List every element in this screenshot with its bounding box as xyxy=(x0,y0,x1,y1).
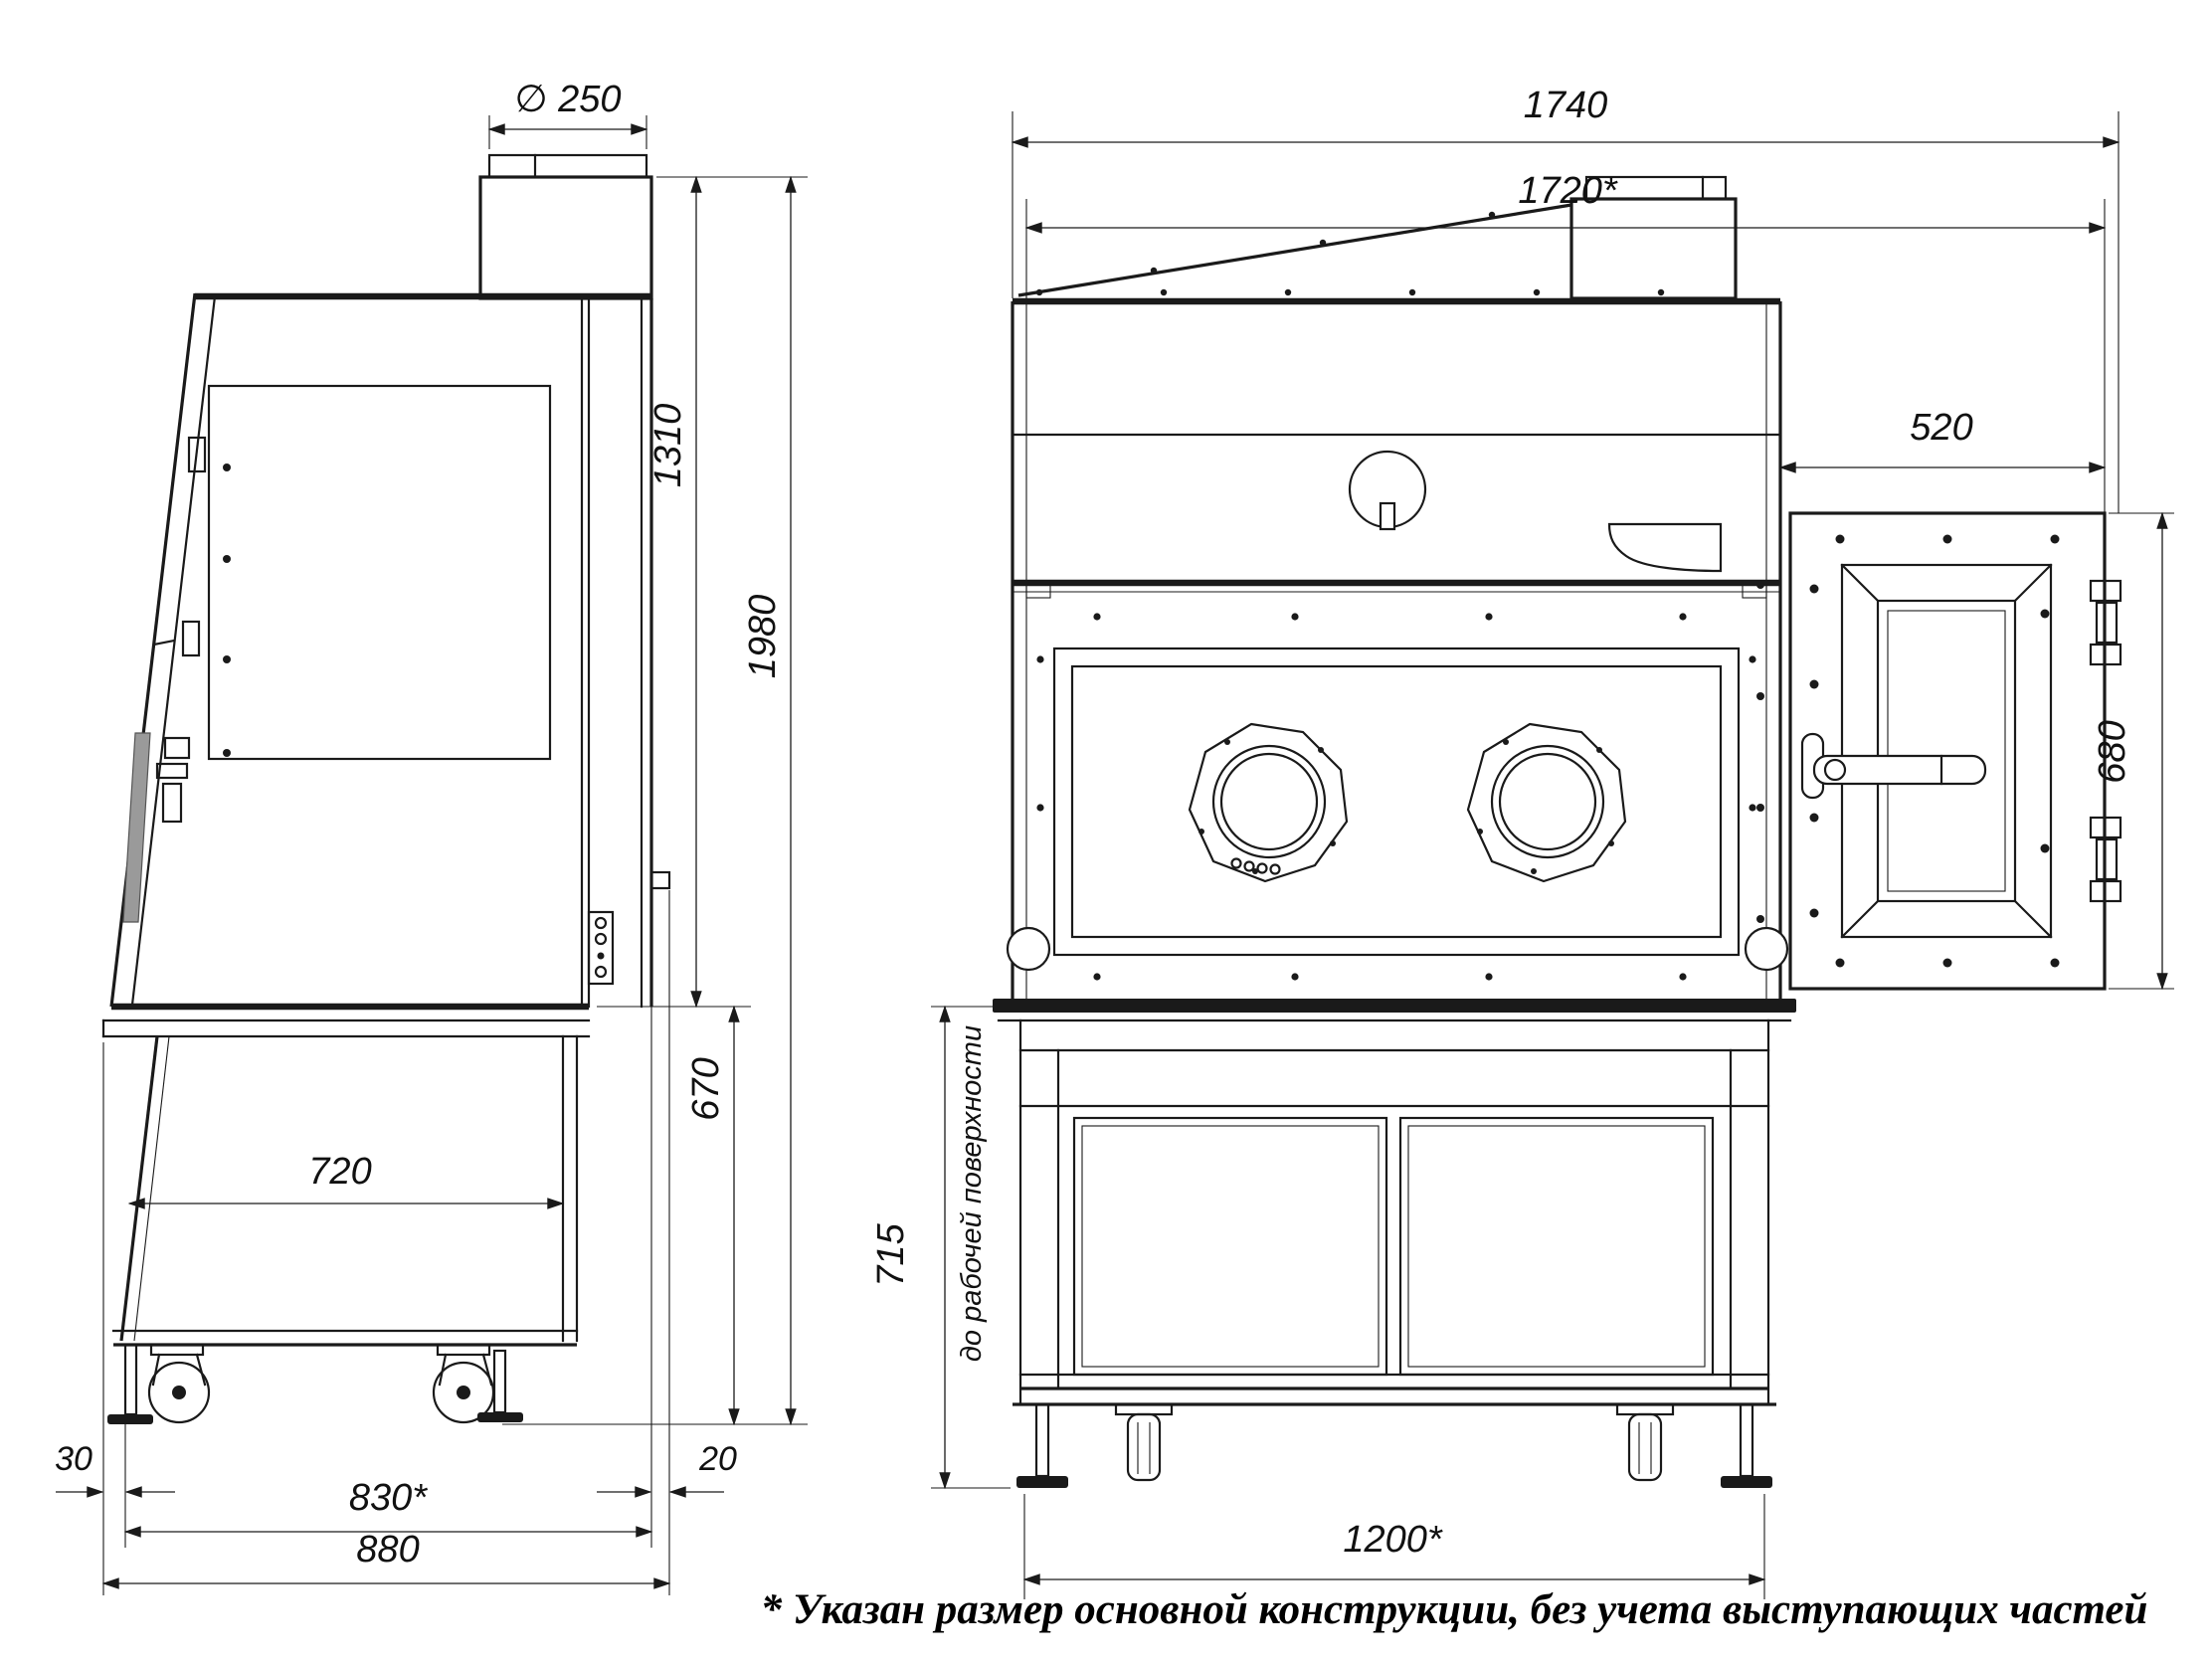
caster-rear-side xyxy=(434,1345,493,1422)
dim-total-depth: 880 xyxy=(356,1529,419,1571)
stand-door-right xyxy=(1400,1118,1713,1375)
dim-main-depth: 830* xyxy=(349,1477,428,1519)
side-panel xyxy=(209,386,550,759)
glove-port-left xyxy=(1190,724,1347,881)
sash-latch xyxy=(165,738,189,758)
glove-window xyxy=(1036,648,1755,955)
sash-hinge-lower xyxy=(183,622,199,655)
exhaust-duct-side xyxy=(480,155,651,298)
clamp-knob-right xyxy=(1746,928,1787,970)
transfer-door xyxy=(1790,513,2120,989)
dim-door-width: 520 xyxy=(1910,407,1972,449)
dim-total-width: 1740 xyxy=(1524,85,1608,126)
dim-main-width: 1720* xyxy=(1518,170,1618,212)
front-stand xyxy=(1013,1020,1776,1488)
dim-stand-width: 1200* xyxy=(1343,1519,1443,1561)
glove-port-right xyxy=(1468,724,1625,881)
side-stand xyxy=(107,1036,577,1424)
pressure-gauge xyxy=(1350,452,1425,529)
leveling-foot-right-front xyxy=(1721,1404,1772,1488)
drawing-canvas: ∅ 250 1310 670 1980 720 30 xyxy=(0,0,2212,1666)
connector-plate xyxy=(589,912,613,984)
front-view: 1740 1720* 520 680 715 до рабочей поверх… xyxy=(870,85,2174,1599)
side-cabinet-body xyxy=(103,293,669,1036)
rear-tab xyxy=(651,872,669,888)
leveling-foot-left-front xyxy=(1016,1404,1068,1488)
handle-recess xyxy=(1609,524,1721,571)
technical-drawing: ∅ 250 1310 670 1980 720 30 xyxy=(0,0,2212,1666)
caster-front-side xyxy=(149,1345,209,1422)
dim-total-height: 1980 xyxy=(742,595,784,679)
dim-stand-depth: 720 xyxy=(308,1151,371,1193)
side-dimensions: ∅ 250 1310 670 1980 720 30 xyxy=(55,79,808,1595)
door-handle xyxy=(1802,734,1985,798)
stand-door-left xyxy=(1074,1118,1386,1375)
work-surface-note: до рабочей поверхности xyxy=(956,1025,988,1362)
dim-stand-height: 670 xyxy=(685,1057,727,1120)
caster-right-front xyxy=(1617,1404,1673,1480)
dim-door-height: 680 xyxy=(2092,720,2133,783)
dim-duct-diameter: ∅ 250 xyxy=(514,79,621,120)
dim-front-offset: 30 xyxy=(55,1440,92,1478)
caster-left-front xyxy=(1116,1404,1172,1480)
dim-upper-height: 1310 xyxy=(647,404,689,488)
clamp-knob-left xyxy=(1008,928,1049,970)
dim-rear-offset: 20 xyxy=(698,1440,737,1478)
dim-work-surface-height: 715 xyxy=(870,1222,912,1286)
leveling-foot-front-side xyxy=(107,1345,153,1424)
side-view: ∅ 250 1310 670 1980 720 30 xyxy=(55,79,808,1595)
footnote: * Указан размер основной конструкции, бе… xyxy=(761,1586,2148,1633)
